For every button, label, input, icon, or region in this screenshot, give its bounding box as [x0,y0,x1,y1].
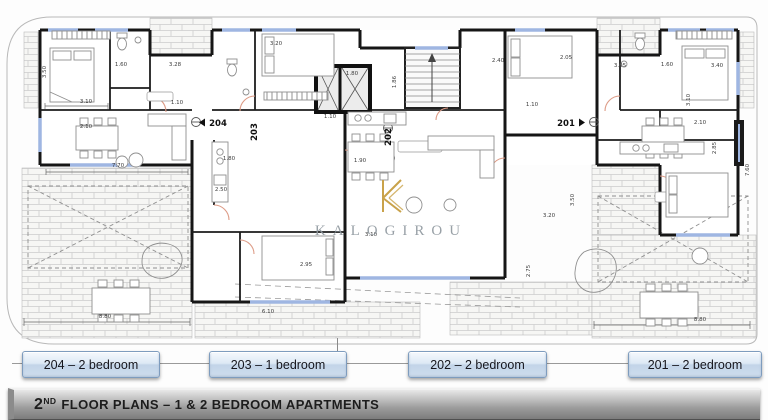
dimension-label: 3.10 [80,99,93,105]
floor-plan-slide: 3.102.101.603.281.103.507.708.802.501.80… [0,0,768,420]
dimension-label: 1.10 [526,102,539,108]
dimension-label: 1.90 [354,158,367,164]
dimension-label: 3.20 [270,41,283,47]
floor-plan-drawing: 3.102.101.603.281.103.507.708.802.501.80… [0,0,768,348]
dimension-label: 6.10 [262,309,275,315]
dimension-label: 3.10 [365,232,378,238]
dimension-label: 7.60 [745,163,751,176]
dimension-label: 2.40 [492,58,505,64]
title-text: FLOOR PLANS – 1 & 2 BEDROOM APARTMENTS [57,397,379,412]
dimension-label: 2.50 [215,187,228,193]
stairs [405,48,460,108]
dimension-label: 3.50 [570,193,576,206]
title-superscript: ND [43,396,56,406]
dimension-label: 1.10 [324,114,337,120]
dimension-label: 3.10 [686,93,692,106]
apartment-204-button[interactable]: 204 – 2 bedroom [22,351,160,378]
dimension-label: 1.80 [346,71,359,77]
dimension-label: 3.05 [614,63,627,69]
dimension-label: 2.75 [526,264,532,277]
dimension-label: 1.80 [223,156,236,162]
dimension-label: 3.40 [711,63,724,69]
title-bar: 2ND FLOOR PLANS – 1 & 2 BEDROOM APARTMEN… [8,388,760,420]
dimension-label: 3.28 [169,62,182,68]
apartment-201-button[interactable]: 201 – 2 bedroom [628,351,762,378]
floor-plan-svg: 3.102.101.603.281.103.507.708.802.501.80… [0,0,768,348]
title-prefix: 2 [34,396,43,414]
dimension-label: 7.70 [112,163,125,169]
dimension-label: 2.05 [560,55,573,61]
dimension-label: 1.60 [115,62,128,68]
apartment-203-button[interactable]: 203 – 1 bedroom [209,351,347,378]
dimension-label: 8.80 [99,314,112,320]
dimension-label: 1.60 [661,62,674,68]
apartment-202-button[interactable]: 202 – 2 bedroom [408,351,547,378]
unit-number-label: 201 [557,119,575,129]
dimension-label: 2.95 [300,262,313,268]
dimension-label: 1.86 [392,75,398,88]
unit-number-label: 202 [384,128,394,146]
dimension-label: 3.50 [42,65,48,78]
dimension-label: 8.80 [694,317,707,323]
unit-number-label: 204 [209,119,227,129]
dimension-label: 2.85 [712,141,718,154]
dimension-label: 2.10 [80,124,93,130]
dimension-label: 3.20 [543,213,556,219]
dimension-label: 1.10 [171,100,184,106]
dimension-label: 2.10 [694,120,707,126]
unit-number-label: 203 [250,123,260,141]
